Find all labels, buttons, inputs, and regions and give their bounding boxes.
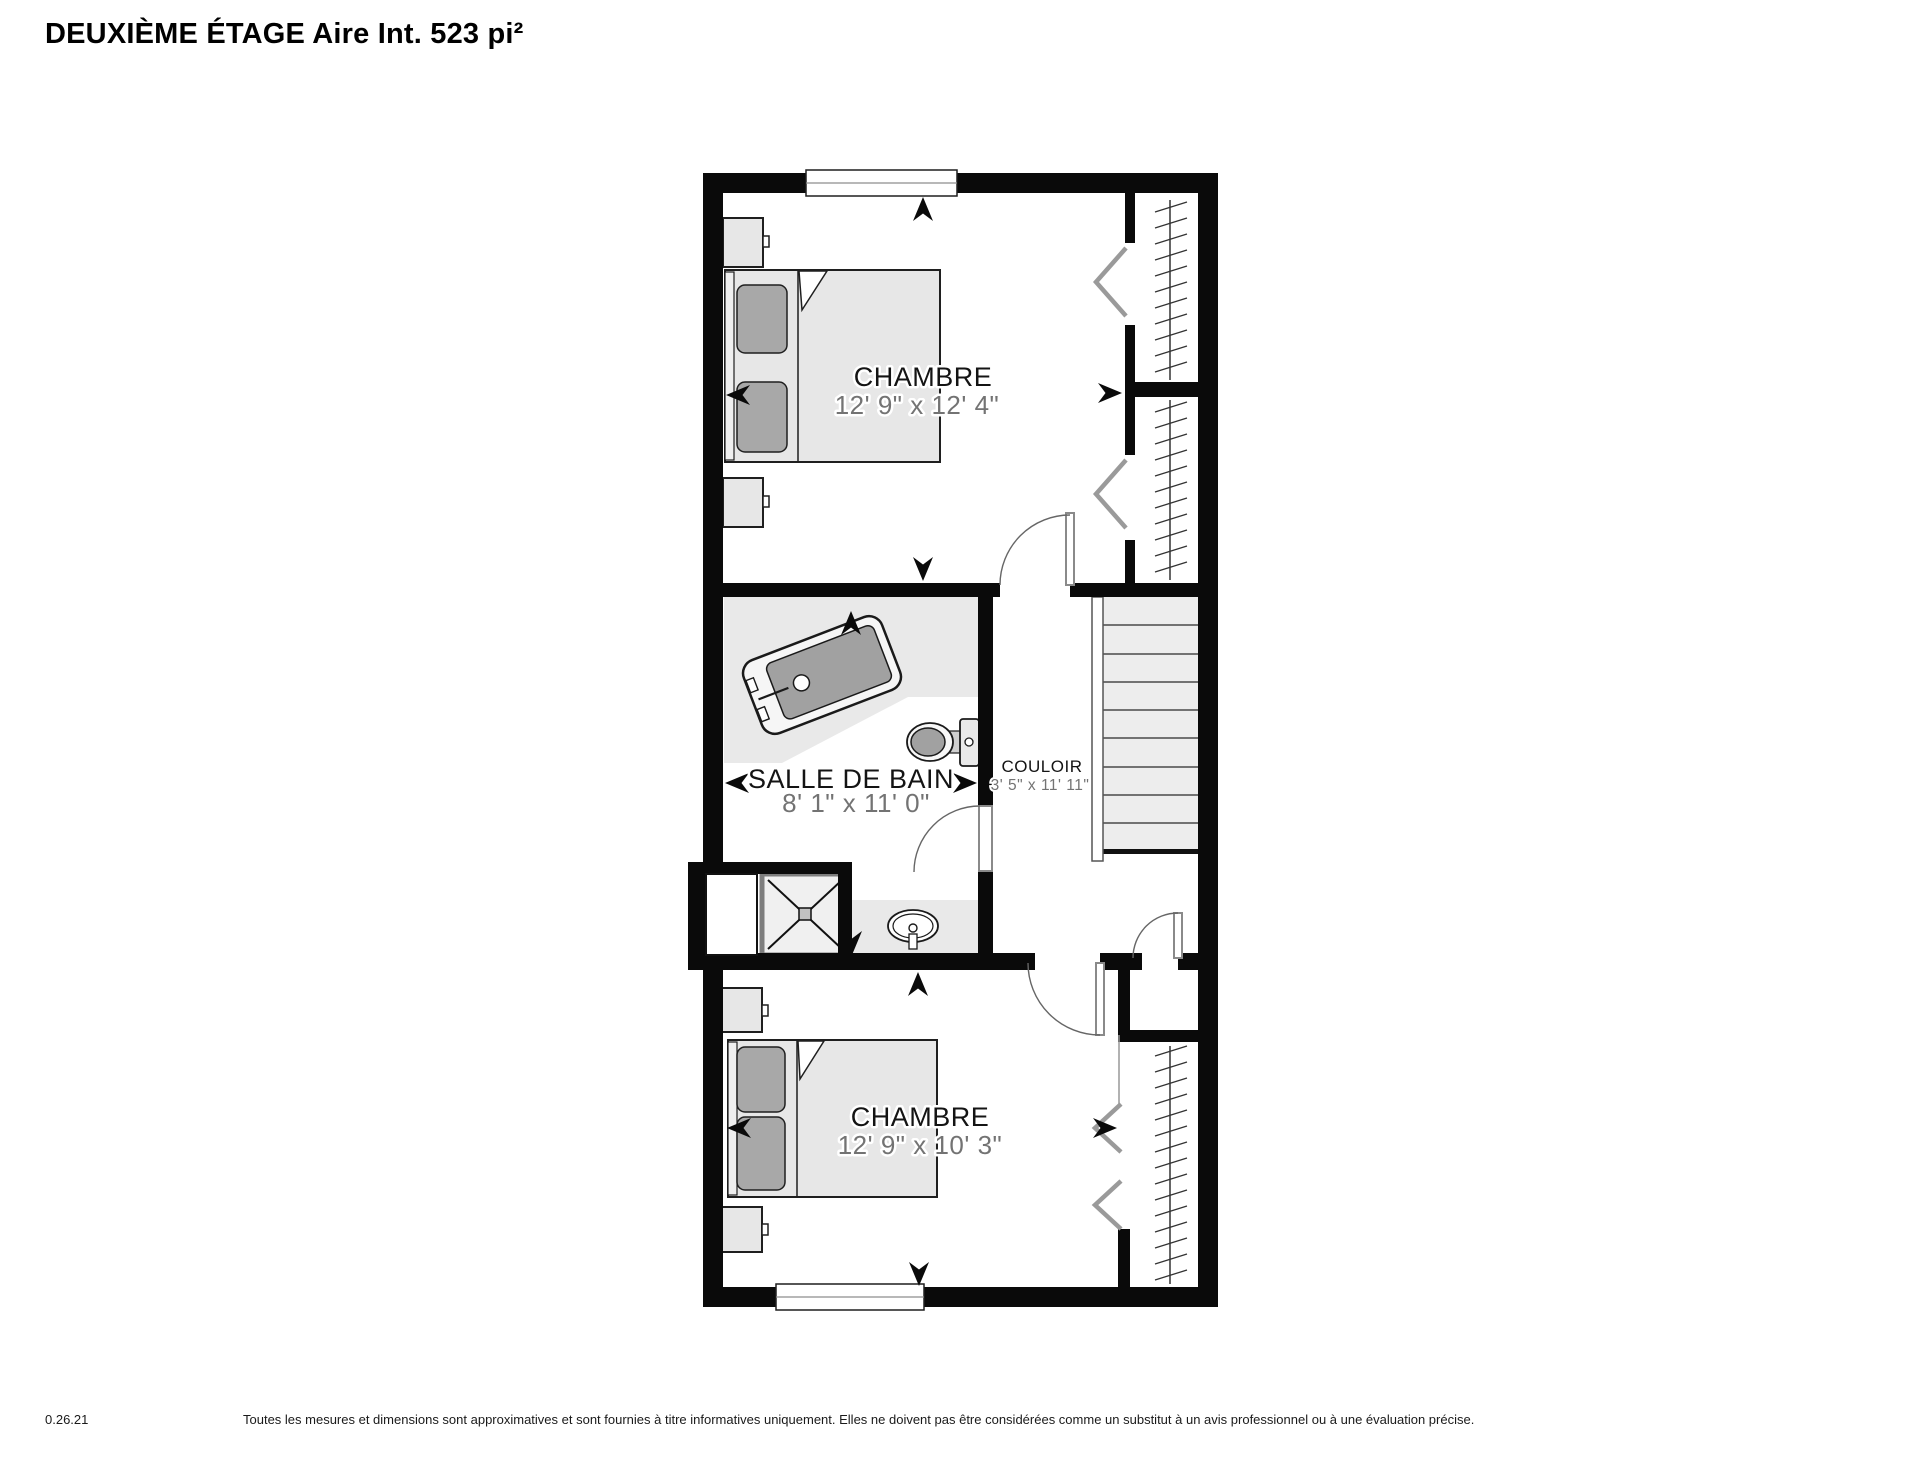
closet-wall: [1125, 325, 1135, 382]
wall-top-right: [955, 173, 1218, 193]
closet-wall: [1125, 193, 1135, 243]
bifold-door-icon: [1096, 248, 1126, 316]
nightstand-knob: [762, 1005, 768, 1016]
room-label: CHAMBRE: [851, 1102, 990, 1132]
linen-niche: [706, 874, 757, 955]
door-leaf: [1066, 513, 1074, 585]
nightstand-knob: [763, 236, 769, 247]
closet-wall: [1125, 397, 1135, 455]
wall-bottom-right: [924, 1287, 1218, 1307]
dim-arrow-up: [913, 197, 933, 221]
hanger-ticks: [1155, 402, 1187, 572]
room-label: COULOIR: [1002, 757, 1083, 776]
room-dimensions: 12' 9" x 10' 3": [838, 1130, 1003, 1160]
wall-hall-left-b: [978, 872, 993, 970]
hanger-ticks: [1155, 202, 1187, 372]
pillow-icon: [737, 382, 787, 452]
stair-bottom-edge: [1103, 849, 1198, 854]
headboard: [725, 272, 734, 460]
room-dimensions: 8' 1" x 11' 0": [782, 788, 930, 818]
small-closet-wall-left: [1118, 955, 1130, 1032]
shower-icon: [762, 874, 848, 955]
pillow-icon: [737, 1047, 785, 1112]
nightstand-icon: [722, 988, 762, 1032]
pillow-icon: [737, 285, 787, 353]
floor-plan: CHAMBRE 12' 9" x 12' 4" SALLE DE BAIN 8'…: [0, 0, 1920, 1483]
wall-bath-top-a: [703, 583, 1000, 597]
wall-bath-top-b: [1070, 583, 1200, 597]
door-leaf: [1096, 963, 1104, 1035]
nightstand-icon: [723, 218, 763, 267]
wall-right: [1198, 173, 1218, 1307]
closet-divider-wall: [1125, 382, 1200, 397]
pillow-icon: [737, 1117, 785, 1190]
door-leaf: [1174, 913, 1182, 958]
closet-wall: [1125, 540, 1135, 583]
version-label: 0.26.21: [45, 1412, 88, 1427]
bifold-door-icon: [1096, 460, 1126, 528]
room-label: CHAMBRE: [854, 362, 993, 392]
dim-arrow-up: [908, 972, 928, 996]
nightstand-knob: [763, 496, 769, 507]
dim-arrow-right: [1098, 383, 1122, 403]
hanger-ticks: [1155, 1046, 1187, 1280]
door-swing-arc: [1028, 963, 1100, 1035]
dim-arrow-right: [953, 773, 977, 793]
headboard: [728, 1042, 737, 1195]
bifold-door-icon: [1095, 1181, 1121, 1229]
small-closet-wall-bottom: [1118, 1030, 1198, 1042]
wall-bath-lower: [706, 862, 852, 874]
dim-arrow-down: [909, 1262, 929, 1286]
room-dimensions: 3' 5" x 11' 11": [991, 777, 1090, 794]
wall-bedroom2-top-c: [1178, 953, 1218, 970]
wall-hall-left-a: [978, 597, 993, 805]
nightstand-icon: [722, 1207, 762, 1252]
door-swing-arc: [1133, 913, 1178, 958]
stairs-icon: [1092, 597, 1198, 861]
door-leaf: [979, 806, 992, 871]
room-dimensions: 12' 9" x 12' 4": [835, 390, 1000, 420]
stairs-body: [1103, 597, 1198, 852]
toilet-icon: [907, 719, 979, 766]
dim-arrow-down: [913, 557, 933, 581]
nightstand-knob: [762, 1224, 768, 1235]
nightstand-icon: [723, 478, 763, 527]
dim-arrow-left: [725, 773, 749, 793]
disclaimer-text: Toutes les mesures et dimensions sont ap…: [243, 1412, 1474, 1427]
door-swing-arc: [1000, 515, 1070, 585]
stair-railing: [1092, 597, 1103, 861]
wall-left: [703, 173, 723, 1307]
closet-wall: [1118, 1229, 1130, 1287]
